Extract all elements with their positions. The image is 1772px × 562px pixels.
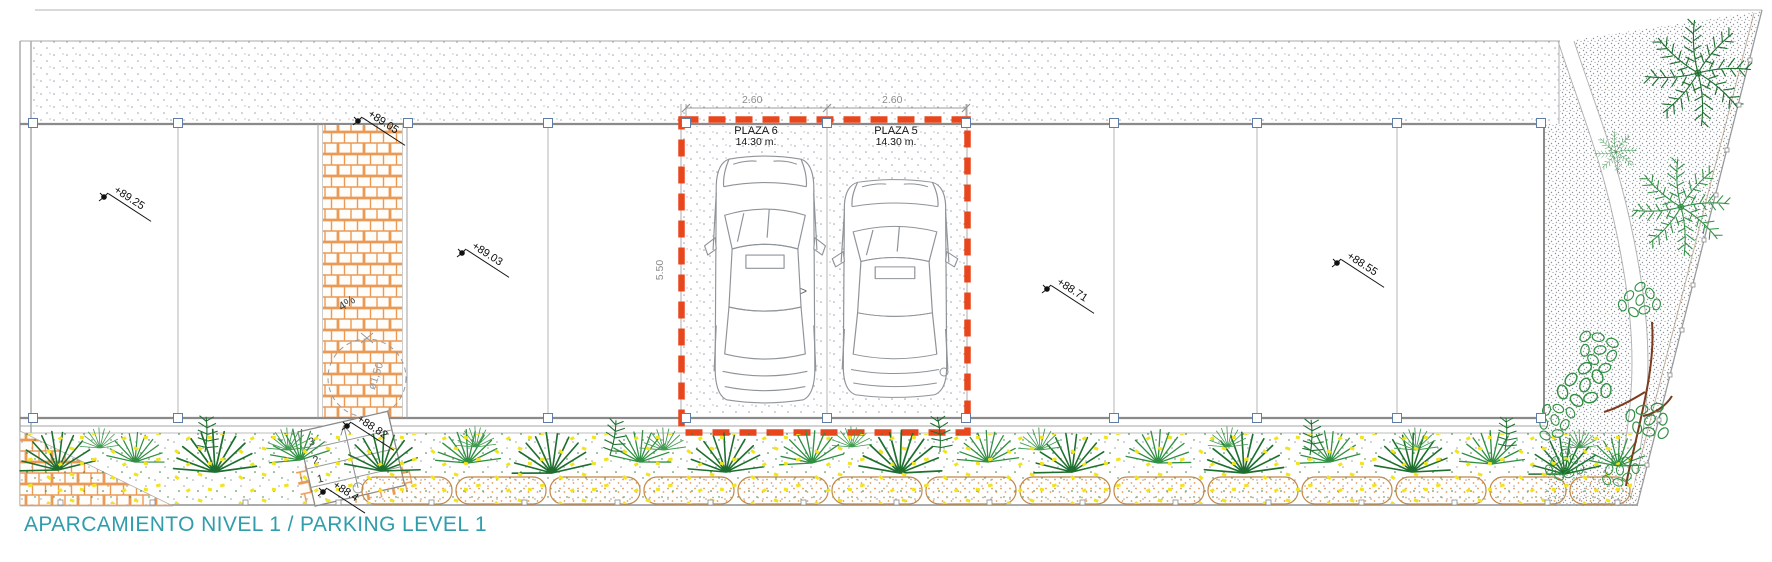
plaza-6-width-dim: 2.60: [742, 94, 762, 106]
parking-structure: [20, 104, 1633, 433]
car-plaza-5: [832, 180, 957, 398]
planting-strip: [16, 414, 1649, 505]
parking-plan-canvas: 3 2 1: [0, 0, 1772, 562]
plaza-5-width-dim: 2.60: [882, 94, 902, 106]
drive-direction-arrow: >: [800, 284, 807, 298]
site-plan-drawing: 3 2 1: [0, 0, 1772, 562]
flower-scatter: [20, 434, 1632, 504]
plaza-5-area: 14.30 m.: [831, 137, 961, 148]
bay-depth-dim: 5.50: [654, 260, 666, 280]
drawing-title: APARCAMIENTO NIVEL 1 / PARKING LEVEL 1: [24, 513, 487, 537]
plaza-6-area: 14.30 m.: [691, 137, 821, 148]
landscape-zone-right: [1545, 11, 1762, 506]
car-plaza-6: [705, 156, 826, 403]
sidewalk-band: [20, 41, 1560, 124]
